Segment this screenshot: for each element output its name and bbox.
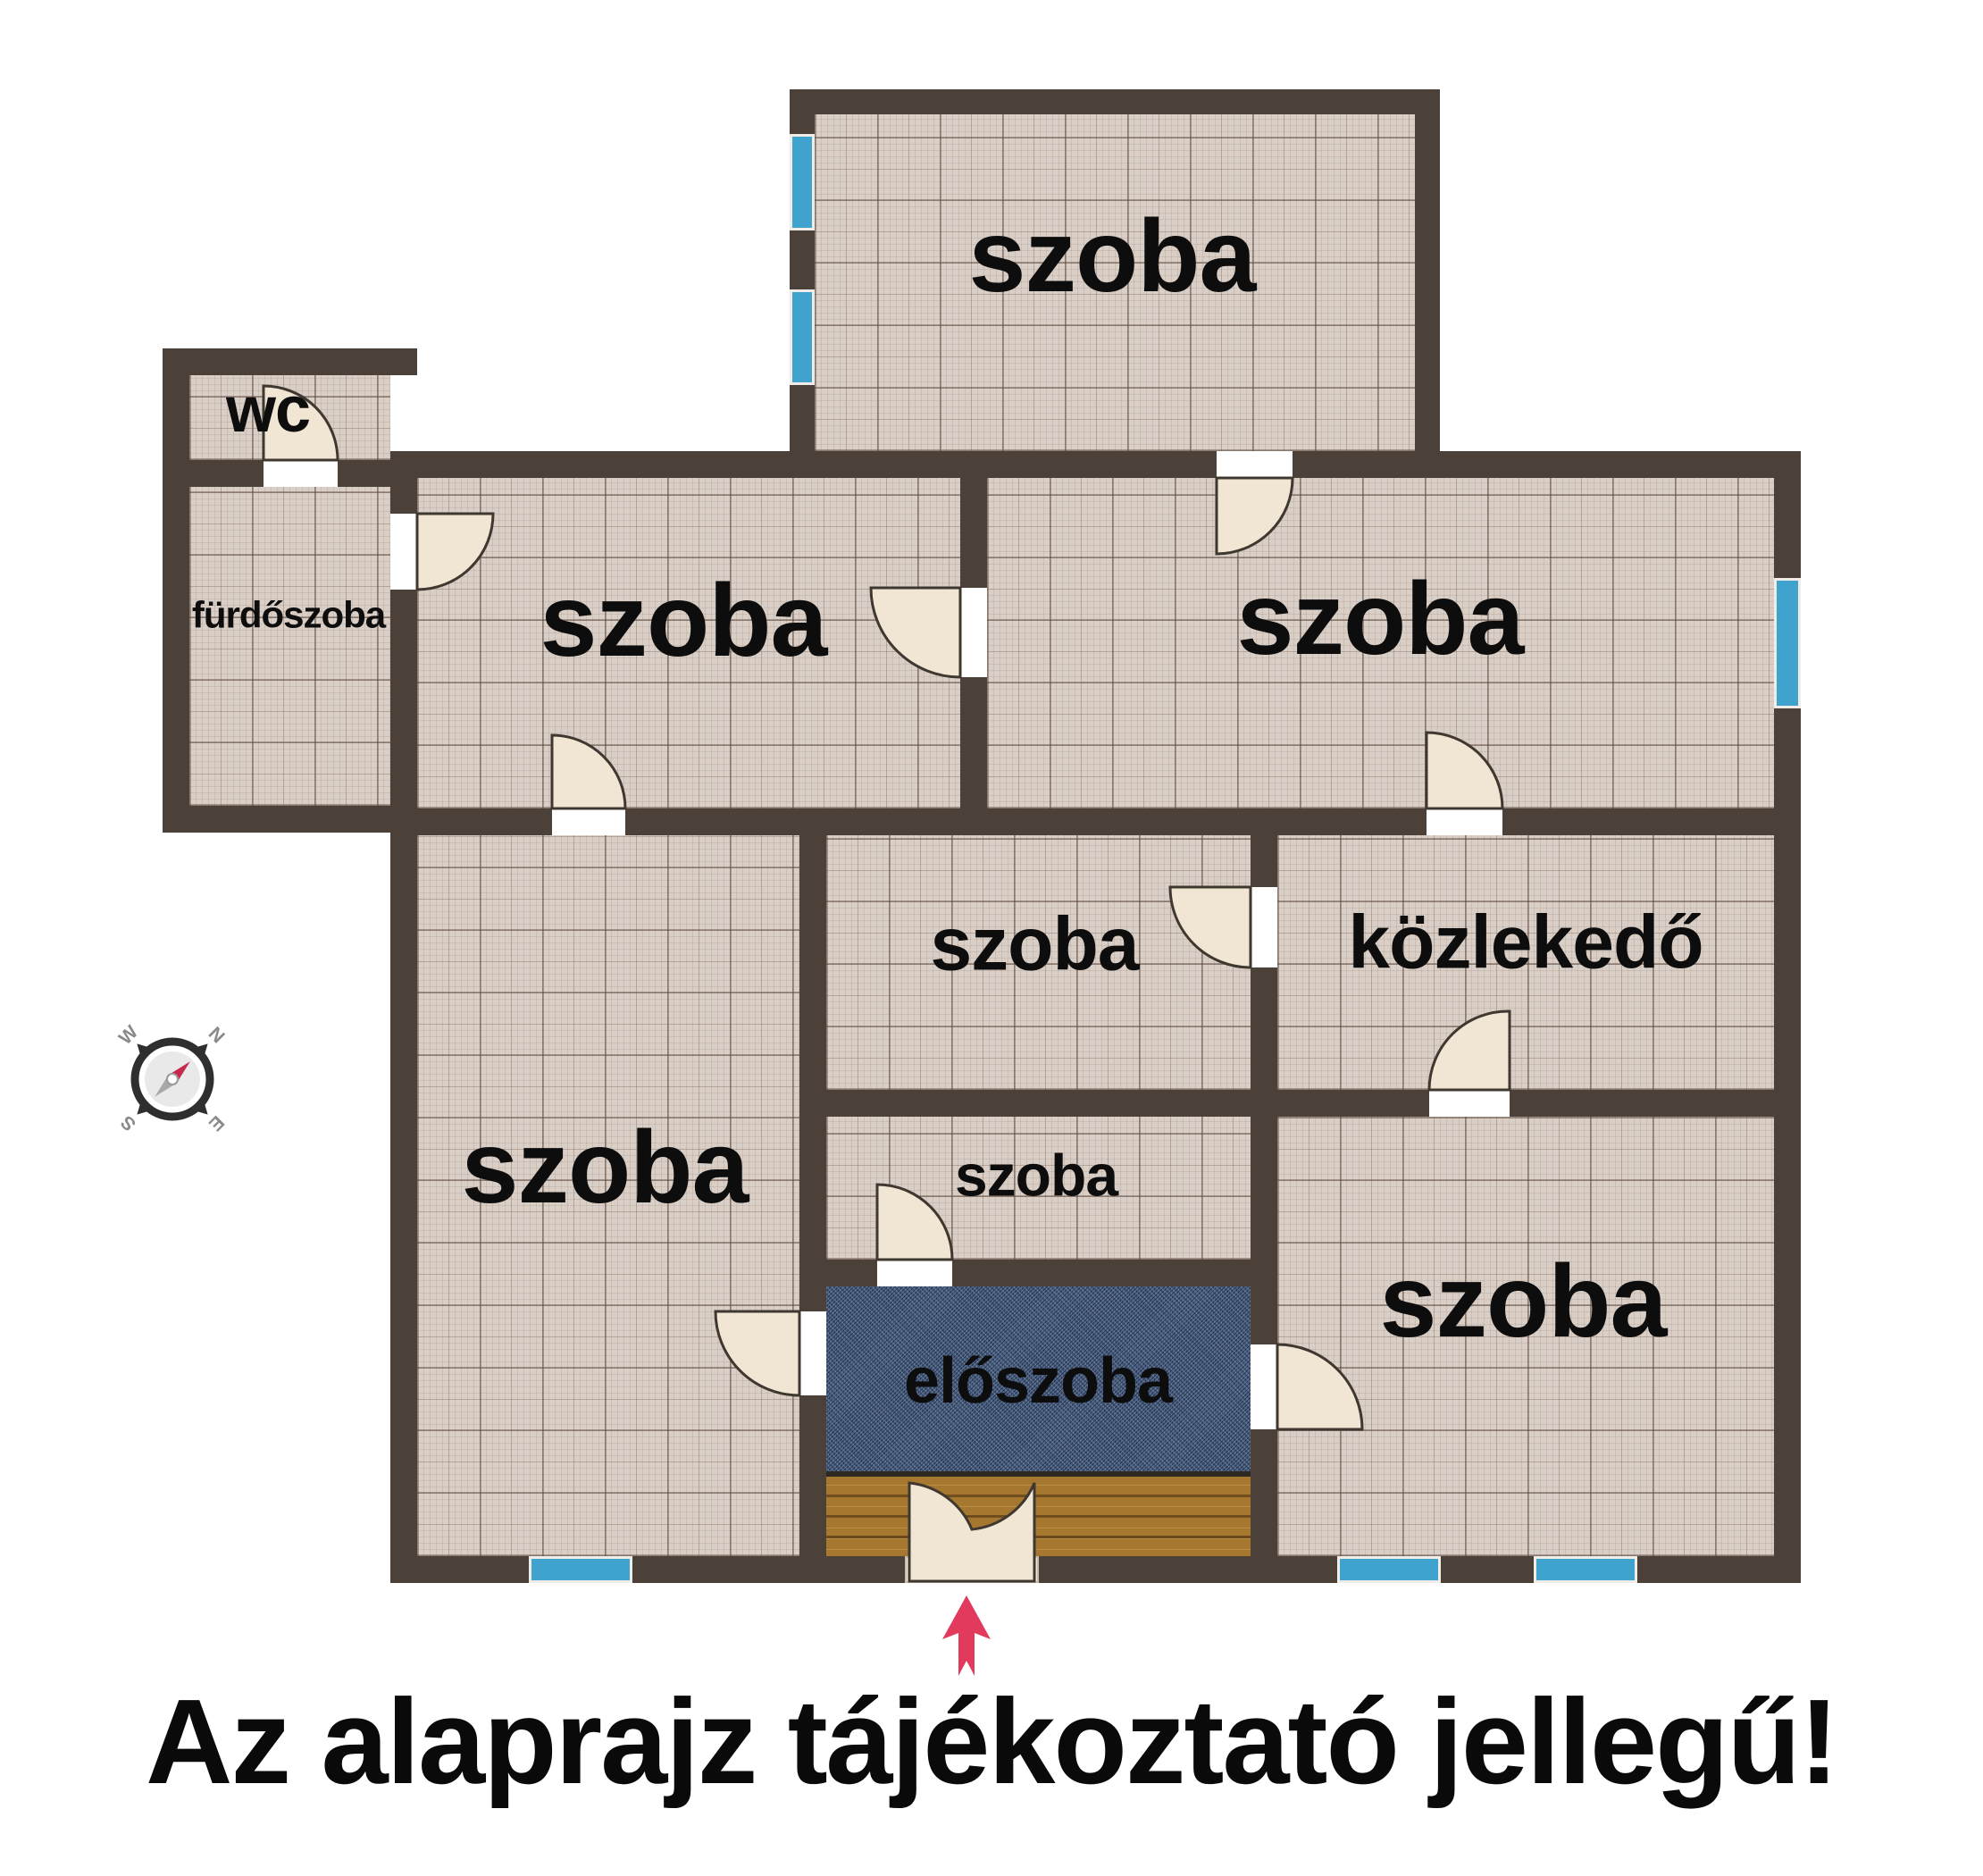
- caption-text: Az alaprajz tájékoztató jellegű!: [0, 1672, 1983, 1811]
- compass-icon: N E S W: [102, 1009, 243, 1150]
- entrance-double-door: [909, 1483, 1034, 1581]
- door-arc: [871, 588, 960, 677]
- room-label-szoba-row2-left: szoba: [540, 570, 827, 673]
- door-arc: [1277, 1344, 1362, 1429]
- room-label-szoba-big: szoba: [462, 1117, 749, 1219]
- entrance-arrow-icon: [942, 1595, 991, 1676]
- compass-label-n: N: [205, 1023, 229, 1047]
- compass-label-e: E: [205, 1111, 228, 1135]
- compass-label-s: S: [117, 1111, 140, 1135]
- room-label-szoba-small: szoba: [955, 1145, 1117, 1204]
- door-arc: [552, 735, 625, 808]
- door-arc: [1429, 1011, 1510, 1090]
- floor-plan-page: N E S W szoba wc fürdőszoba szoba szoba …: [0, 0, 1983, 1876]
- room-label-kozlekedo: közlekedő: [1348, 905, 1703, 980]
- door-arc: [877, 1185, 952, 1260]
- door-arc: [1427, 733, 1502, 808]
- door-arc: [1217, 478, 1293, 554]
- door-arc: [1170, 887, 1251, 967]
- room-label-top-szoba: szoba: [969, 205, 1256, 308]
- door-arc: [715, 1311, 799, 1395]
- room-label-furdoszoba: fürdőszoba: [192, 596, 385, 633]
- room-label-szoba-mid: szoba: [930, 907, 1138, 982]
- room-label-wc: wc: [226, 378, 310, 442]
- room-label-eloszoba: előszoba: [904, 1349, 1172, 1413]
- room-label-szoba-row2-right: szoba: [1237, 568, 1524, 671]
- door-arc: [417, 514, 493, 590]
- room-label-szoba-row4-right: szoba: [1380, 1251, 1667, 1353]
